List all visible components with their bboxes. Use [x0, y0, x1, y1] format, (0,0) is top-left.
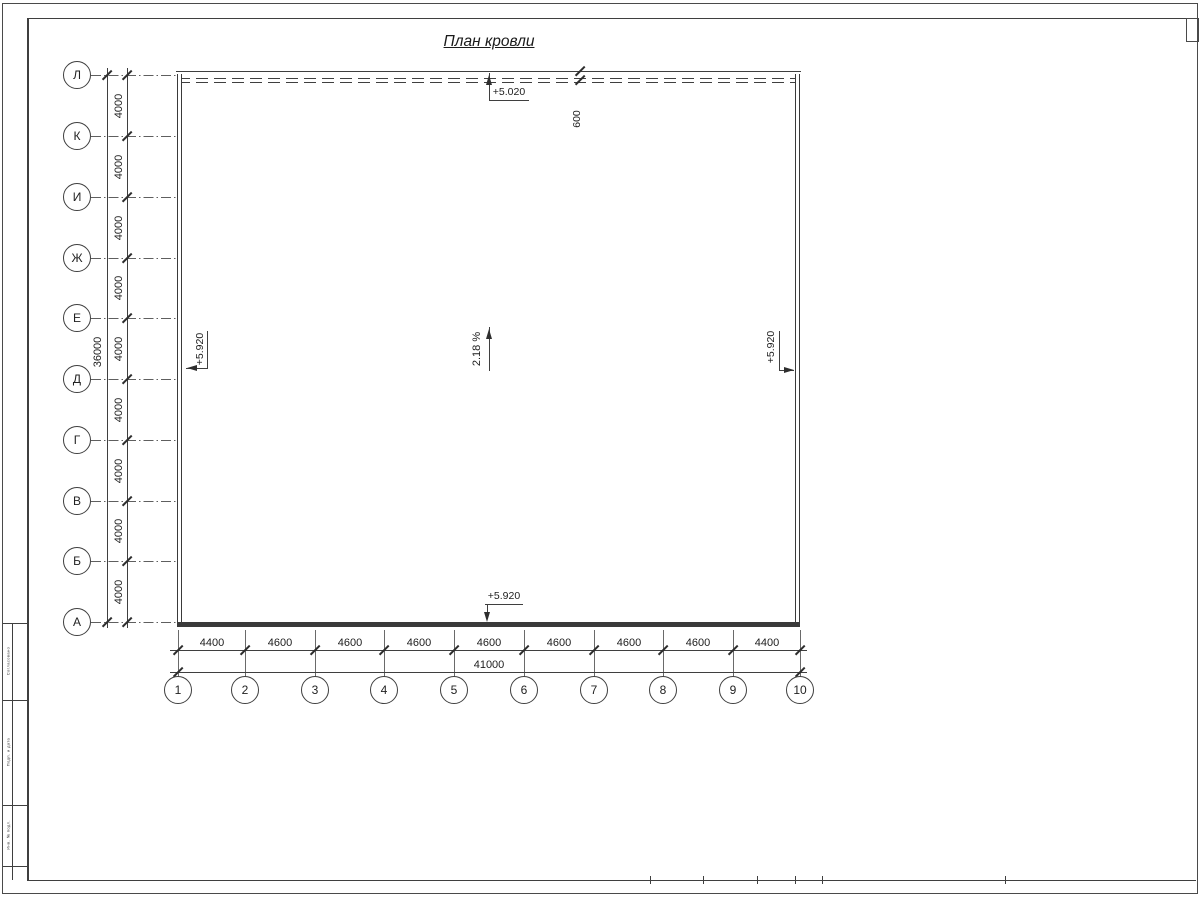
horizontal-dim-label: 4600 — [686, 637, 710, 649]
col-axis-bubble: 4 — [370, 676, 398, 704]
axis-extension-line — [454, 630, 455, 677]
stamp-label: Согласовано — [6, 647, 11, 675]
row-axis-bubble: А — [63, 608, 91, 636]
row-axis-bubble: Д — [63, 365, 91, 393]
vertical-dim-label: 4000 — [113, 216, 125, 240]
col-axis-bubble: 6 — [510, 676, 538, 704]
overhang-dim-label: 600 — [571, 110, 583, 128]
col-axis-bubble: 10 — [786, 676, 814, 704]
title-block-tick — [757, 876, 758, 884]
horizontal-dim-line-inner — [170, 650, 807, 651]
title-block-tick — [822, 876, 823, 884]
vertical-dim-label: 4000 — [113, 398, 125, 422]
vertical-dim-label: 4000 — [113, 155, 125, 179]
axis-extension-line — [663, 630, 664, 677]
row-axis-bubble: Б — [63, 547, 91, 575]
axis-line — [91, 440, 176, 441]
stamp-strip-divider — [12, 623, 13, 880]
elevation-bottom-underline — [485, 604, 523, 605]
arrow-right-icon — [784, 367, 797, 373]
title-block-tick — [1005, 876, 1006, 884]
slope-arrow-icon — [486, 326, 492, 339]
row-axis-bubble: В — [63, 487, 91, 515]
vertical-dim-line-inner — [127, 68, 128, 628]
title-block-tick — [795, 876, 796, 884]
row-axis-bubble: И — [63, 183, 91, 211]
arrow-down-icon — [484, 612, 490, 625]
col-axis-bubble: 8 — [649, 676, 677, 704]
frame-corner-box — [1186, 18, 1199, 42]
vertical-dim-label: 4000 — [113, 337, 125, 361]
horizontal-dim-label: 4400 — [755, 637, 779, 649]
horizontal-dim-label: 4600 — [477, 637, 501, 649]
horizontal-dim-label: 4400 — [200, 637, 224, 649]
elevation-top-label: +5.020 — [493, 86, 525, 98]
col-axis-bubble: 2 — [231, 676, 259, 704]
elevation-top-underline — [489, 100, 529, 101]
axis-line — [91, 501, 176, 502]
building-wall-right — [795, 74, 800, 627]
horizontal-dim-label: 4600 — [338, 637, 362, 649]
axis-line — [91, 136, 176, 137]
axis-line — [91, 318, 176, 319]
elevation-left-leader — [207, 331, 208, 368]
drawing-title: План кровли — [444, 33, 535, 51]
horizontal-dim-label: 4600 — [407, 637, 431, 649]
elevation-right-label: +5.920 — [765, 331, 777, 363]
vertical-dim-label: 4000 — [113, 94, 125, 118]
col-axis-bubble: 3 — [301, 676, 329, 704]
vertical-dim-label: 4000 — [113, 459, 125, 483]
arrow-up-icon — [486, 72, 492, 85]
horizontal-dim-line-outer — [170, 672, 807, 673]
frame-left-line — [27, 18, 29, 880]
stamp-label: Инв. № подл. — [6, 820, 11, 850]
stamp-cell-line — [3, 866, 27, 867]
vertical-dim-label: 4000 — [113, 580, 125, 604]
col-axis-bubble: 7 — [580, 676, 608, 704]
stamp-label: Подп. и дата — [6, 738, 11, 766]
row-axis-bubble: Л — [63, 61, 91, 89]
stamp-cell-line — [3, 623, 27, 624]
drawing-sheet: Согласовано Подп. и дата Инв. № подл. Пл… — [0, 0, 1200, 900]
row-axis-bubble: Е — [63, 304, 91, 332]
stamp-cell-line — [3, 700, 27, 701]
elevation-bottom-label: +5.920 — [488, 590, 520, 602]
building-wall-left — [177, 74, 182, 627]
axis-line — [91, 561, 176, 562]
title-block-tick — [703, 876, 704, 884]
vertical-total-dim-label: 36000 — [92, 337, 104, 368]
axis-extension-line — [524, 630, 525, 677]
horizontal-dim-label: 4600 — [547, 637, 571, 649]
vertical-dim-label: 4000 — [113, 519, 125, 543]
axis-line — [91, 258, 176, 259]
horizontal-dim-label: 4600 — [268, 637, 292, 649]
elevation-left-label: +5.920 — [194, 333, 206, 365]
frame-bottom-line — [27, 880, 1196, 881]
title-block-tick — [650, 876, 651, 884]
row-axis-bubble: Ж — [63, 244, 91, 272]
col-axis-bubble: 9 — [719, 676, 747, 704]
frame-top-line — [27, 18, 1196, 19]
col-axis-bubble: 5 — [440, 676, 468, 704]
axis-extension-line — [384, 630, 385, 677]
stamp-cell-line — [3, 805, 27, 806]
slope-label: 2.18 % — [471, 332, 483, 366]
horizontal-total-dim-label: 41000 — [474, 659, 505, 671]
axis-line — [91, 197, 176, 198]
vertical-dim-label: 4000 — [113, 276, 125, 300]
col-axis-bubble: 1 — [164, 676, 192, 704]
axis-extension-line — [594, 630, 595, 677]
arrow-left-icon — [184, 365, 197, 371]
row-axis-bubble: К — [63, 122, 91, 150]
axis-line — [91, 379, 176, 380]
horizontal-dim-label: 4600 — [617, 637, 641, 649]
row-axis-bubble: Г — [63, 426, 91, 454]
axis-extension-line — [733, 630, 734, 677]
axis-extension-line — [245, 630, 246, 677]
elevation-right-leader — [779, 331, 780, 370]
axis-extension-line — [315, 630, 316, 677]
vertical-dim-line-outer — [107, 68, 108, 628]
